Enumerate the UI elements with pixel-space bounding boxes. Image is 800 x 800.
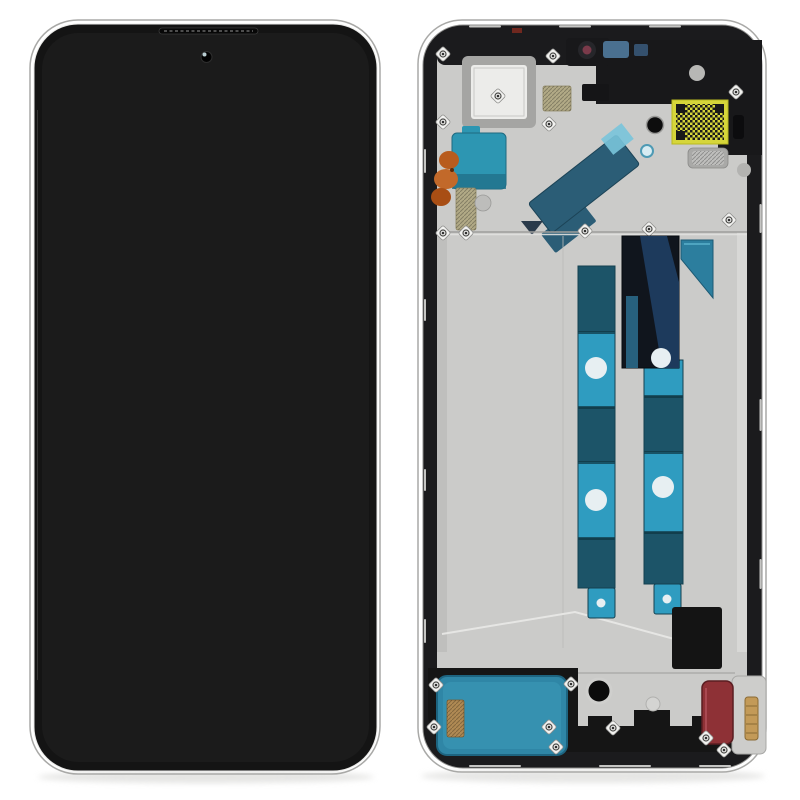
strip-tab-hole — [597, 599, 606, 608]
photo-canvas: Product photo: smartphone LCD screen and… — [0, 0, 800, 800]
speaker-adhesive-bottom — [437, 676, 567, 755]
front-camera-lens — [578, 41, 596, 59]
diagonal-flex-hole — [641, 145, 653, 157]
bottom-tan-pad — [447, 700, 464, 737]
bottom-gray-circle — [646, 697, 660, 711]
front-camera — [201, 52, 212, 63]
back-phone: Back view - display middle frame with fl… — [418, 20, 766, 783]
frame-paint-chip — [512, 28, 522, 33]
earpiece-slit — [159, 28, 258, 34]
back-phone-shadow — [421, 769, 765, 783]
deck-gray-circle-left — [475, 195, 491, 211]
gray-pad-right — [688, 148, 728, 168]
strip-hole — [651, 348, 671, 368]
front-phone: Front view - assembled black LCD display — [30, 20, 380, 783]
bottom-black-bump — [634, 710, 670, 728]
front-display-glass — [42, 33, 369, 762]
plate-rail-right — [737, 232, 747, 652]
graphite-strip-right — [644, 360, 683, 614]
black-component-lower-right — [672, 607, 722, 669]
top-black-hole — [647, 117, 664, 134]
strip-hole — [652, 476, 674, 498]
gold-connector — [745, 697, 758, 740]
strip-tab-hole — [663, 595, 672, 604]
product-photo: Product photo: smartphone LCD screen and… — [0, 0, 800, 800]
graphite-strip-left — [578, 266, 615, 618]
qr-sticker — [672, 100, 728, 144]
black-connector — [582, 84, 609, 101]
front-camera-glint — [203, 53, 207, 57]
blue-sensor-chip — [603, 41, 629, 58]
microphone-hole — [587, 679, 611, 703]
front-phone-shadow — [38, 771, 374, 783]
blue-sensor-chip-small — [634, 44, 648, 56]
plate-rail-left — [437, 232, 447, 652]
tan-pad-left — [456, 188, 476, 230]
strip-hole — [585, 357, 607, 379]
deck-gray-circle-right — [737, 163, 751, 177]
navy-film — [622, 236, 679, 368]
sim-slot — [733, 115, 744, 139]
teal-adhesive-top — [452, 126, 506, 189]
top-silver-button — [689, 65, 705, 81]
tan-pad-center — [543, 86, 571, 111]
strip-hole — [585, 489, 607, 511]
